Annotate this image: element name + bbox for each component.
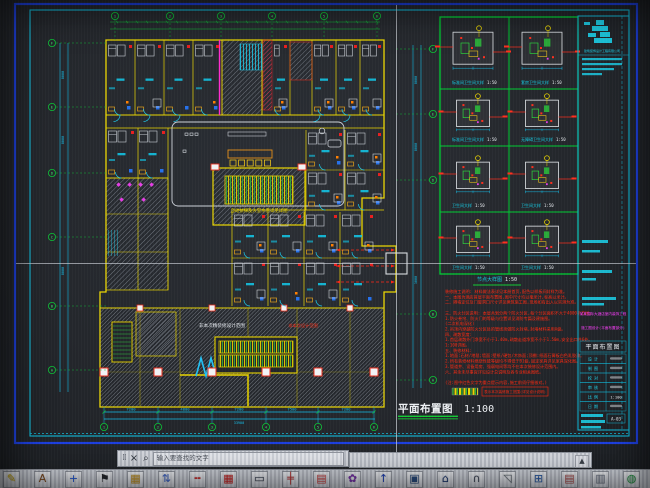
detail-caption: 标准间卫生间大样1:50 — [452, 79, 497, 85]
move-icon[interactable]: + — [65, 471, 82, 488]
roof-arrow-icon[interactable]: ◹ — [499, 471, 516, 488]
svg-text:比 例: 比 例 — [588, 395, 598, 400]
floor-plan: 自动扶梯及大堂水景详见详图非本次精装修设计范围非本次设计范围 — [100, 40, 396, 407]
notes-block: 装修施工说明: 材料做法表详见本册首页,配色以样板间封样为准。一、本图为酒店首层… — [445, 288, 593, 396]
svg-text:A: A — [51, 368, 54, 372]
pencil-icon[interactable]: ✎ — [3, 471, 20, 488]
drawing-viewport[interactable]: 自动扶梯及大堂水景详见详图非本次精装修设计范围非本次设计范围8000800080… — [0, 0, 650, 488]
svg-text:6: 6 — [376, 14, 378, 18]
room — [271, 263, 302, 306]
lobby-block-label: 自动扶梯及大堂水景详见详图 — [230, 207, 288, 214]
svg-text:E: E — [51, 105, 53, 109]
room — [275, 45, 288, 115]
svg-text:B: B — [432, 312, 434, 316]
room — [307, 263, 338, 306]
svg-text:A-03: A-03 — [611, 417, 622, 422]
svg-text:3: 3 — [220, 14, 222, 18]
detail-figure — [439, 220, 508, 257]
svg-text:节点大样图1:50: 节点大样图1:50 — [477, 276, 517, 283]
detail-caption: 卫生间大样1:50 — [452, 264, 485, 270]
grid-bubble: 1 — [100, 423, 107, 430]
room — [348, 173, 382, 210]
note-line: 二、隔墙定位及门窗洞口尺寸详见建筑施工图,现场如有出入以实测为准。 — [445, 299, 578, 305]
close-icon[interactable]: × — [129, 454, 139, 464]
svg-text:B: B — [51, 304, 53, 308]
svg-text:F: F — [432, 47, 434, 51]
room — [196, 45, 220, 115]
note-line: 2.所有装修材料燃烧性能等级均不得低于B1级,固定家具详见家具深化图。 — [445, 358, 580, 364]
svg-text:3: 3 — [211, 425, 213, 429]
note-line: (注:图中红色文字为重点提示内容,施工前须仔细核对。) — [445, 379, 547, 385]
svg-text:2: 2 — [169, 14, 171, 18]
note-line: 2.吊顶内穿越防火分区处的管线须做防火封堵,封堵材料采用A级。 — [445, 325, 565, 331]
svg-text:1:100: 1:100 — [464, 404, 494, 415]
svg-text:平面布置图: 平面布置图 — [585, 343, 620, 351]
schedule-icon[interactable]: ▤ — [561, 471, 578, 488]
flag-icon[interactable]: ⚑ — [96, 471, 113, 488]
room — [309, 173, 343, 210]
svg-text:33900: 33900 — [234, 421, 245, 425]
room — [309, 133, 343, 170]
find-input[interactable]: 输入要查找的文字 — [153, 452, 344, 466]
sheet-icon[interactable]: ▥ — [592, 471, 609, 488]
svg-text:1: 1 — [103, 425, 105, 429]
detail-caption: 套房卫生间大样1:50 — [521, 79, 562, 85]
svg-text:7200: 7200 — [126, 407, 136, 412]
svg-text:D: D — [51, 171, 53, 175]
grid-bubble: 4 — [262, 423, 269, 430]
svg-text:5: 5 — [317, 425, 319, 429]
grid-bubble: E — [48, 103, 55, 110]
detail-caption: 卫生间大样1:50 — [521, 264, 554, 270]
svg-text:8000: 8000 — [61, 71, 65, 79]
dim-line-icon[interactable]: ╍ — [189, 471, 206, 488]
title-block: 建筑装饰设计工程有限公司某某国际大酒店室内装饰工程施工图设计(平面布置部分)平面… — [578, 16, 629, 430]
svg-text:8000: 8000 — [61, 267, 65, 275]
grid-bubble: 2 — [166, 12, 173, 19]
text-style-icon[interactable]: A — [34, 471, 51, 488]
room — [235, 263, 266, 306]
arrow-up-icon[interactable]: ↑ — [375, 471, 392, 488]
room — [343, 263, 374, 306]
grid-bubble: 6 — [373, 12, 380, 19]
room — [307, 215, 338, 258]
note-line: 四、疏散宽度: — [445, 331, 472, 337]
note-line: 五、装修材料: — [445, 347, 472, 353]
svg-text:施工图设计(平面布置部分): 施工图设计(平面布置部分) — [581, 325, 625, 330]
grid-bubble: E — [429, 110, 436, 117]
room — [343, 215, 374, 258]
section-marks-icon[interactable]: ╪ — [282, 471, 299, 488]
note-line: 1:100详图。 — [445, 342, 470, 348]
bottom-toolbar: ✎A+⚑▦⇅╍▦▭╪▤✿↑▣⌂∩◹⊞▤▥◍◨ — [0, 469, 650, 488]
svg-text:C: C — [51, 235, 53, 239]
svg-text:设 计: 设 计 — [588, 357, 598, 362]
grid-bubble: 5 — [314, 423, 321, 430]
plan-title: 平面布置图1:100 — [398, 402, 494, 419]
svg-text:建筑装饰设计工程有限公司: 建筑装饰设计工程有限公司 — [584, 48, 620, 53]
table-cells-icon[interactable]: ▦ — [127, 471, 144, 488]
svg-text:4: 4 — [271, 14, 273, 18]
magnifier-icon[interactable]: ⌕ — [142, 454, 150, 464]
find-toolbar: ⁞⁞ × ⌕ 输入要查找的文字 — [117, 450, 349, 467]
room — [138, 45, 162, 115]
grid-bubble: A — [48, 366, 55, 373]
track-grid-icon[interactable]: ▦ — [220, 471, 237, 488]
note-line: 一、本图为酒店首层平面布置图,图中尺寸均以毫米计,标高以米计。 — [445, 293, 569, 299]
detail-caption: 卫生间大样1:50 — [521, 202, 554, 208]
grid-bubble: D — [48, 169, 55, 176]
grid-bubble: D — [429, 176, 436, 183]
note-line: (二次机电深化) — [445, 320, 475, 326]
room — [348, 133, 382, 170]
svg-text:6: 6 — [373, 425, 375, 429]
svg-text:8000: 8000 — [414, 143, 418, 151]
grid-bubble: 2 — [154, 423, 161, 430]
grid-bubble: B — [429, 310, 436, 317]
svg-text:2: 2 — [157, 425, 159, 429]
detail-figure — [439, 156, 508, 193]
detail-caption: 标准间卫生间大样1:50 — [452, 136, 497, 142]
detail-figure — [508, 94, 577, 131]
scroll-arrow-icon[interactable]: ▲ — [575, 455, 589, 468]
detail-figure — [439, 94, 508, 131]
note-line: 3.管道井、设备用房、强弱电间等均不在本次装修设计范围内。 — [445, 363, 560, 369]
grid-bubble: A — [429, 376, 436, 383]
room — [167, 45, 191, 115]
svg-text:8000: 8000 — [61, 136, 65, 144]
detail-figure — [508, 156, 577, 193]
grid-bubble: F — [48, 39, 55, 46]
svg-text:5: 5 — [323, 14, 325, 18]
note-line: 1.首层疏散外门净宽不小于1.40m,疏散走道净宽不小于1.50m,安全出口共6… — [445, 336, 593, 342]
room — [109, 45, 133, 115]
grid-bubble: 3 — [208, 423, 215, 430]
svg-text:审 核: 审 核 — [588, 385, 598, 390]
svg-text:1: 1 — [114, 14, 116, 18]
grid-bubble: 3 — [217, 12, 224, 19]
building-icon[interactable]: ⌂ — [437, 471, 454, 488]
detail-section-caption: 节点大样图1:50 — [473, 276, 521, 286]
detail-caption: 卫生间大样1:50 — [452, 202, 485, 208]
detail-figure — [504, 26, 580, 70]
grid-sheet-icon[interactable]: ⊞ — [530, 471, 547, 488]
note-line: 装修施工说明: 材料做法表详见本册首页,配色以样板间封样为准。 — [445, 288, 567, 294]
svg-text:E: E — [432, 112, 434, 116]
grid-bubble: C — [48, 233, 55, 240]
svg-text:8000: 8000 — [414, 76, 418, 84]
svg-text:F: F — [51, 41, 53, 45]
grid-bubble: 4 — [268, 12, 275, 19]
grid-bubble: 5 — [320, 12, 327, 19]
svg-text:制 图: 制 图 — [588, 366, 598, 371]
svg-text:平面布置图: 平面布置图 — [398, 402, 453, 415]
axis-swap-icon[interactable]: ⇅ — [158, 471, 175, 488]
svg-text:4800: 4800 — [180, 407, 190, 412]
cad-application-window: 自动扶梯及大堂水景详见详图非本次精装修设计范围非本次设计范围8000800080… — [0, 0, 650, 488]
screen-icon[interactable]: ▭ — [251, 471, 268, 488]
svg-text:7500: 7500 — [287, 407, 297, 412]
rail-icon[interactable]: ▤ — [313, 471, 330, 488]
svg-text:日 期: 日 期 — [588, 404, 598, 409]
toolbar-grip[interactable]: ⁞⁞ — [122, 454, 126, 463]
note-line: 1.防火卷帘、防火门的等级与位置详见消防专篇及建施图。 — [445, 315, 552, 321]
svg-text:7200: 7200 — [341, 407, 351, 412]
grid-bubble: 1 — [111, 12, 118, 19]
podium-note-white: 非本次精装修设计范围 — [199, 322, 245, 329]
podium-note-red: 非本次设计范围 — [288, 322, 317, 329]
svg-text:A: A — [432, 378, 435, 382]
note-line: 1.地面:石材/地毯;墙面:壁纸/硬包/木饰面;顶棚:纸面石膏板白色乳胶漆。 — [445, 352, 584, 358]
detail-figure — [508, 220, 577, 257]
svg-text:某某国际大酒店室内装饰工程: 某某国际大酒店室内装饰工程 — [580, 311, 627, 316]
room — [363, 45, 382, 115]
note-line: 三、防火分区说明: 本层共划分两个防火分区,每个分区面积不大于4000平方米。 — [445, 309, 593, 315]
svg-text:校 对: 校 对 — [588, 376, 598, 381]
grid-bubble: 6 — [370, 423, 377, 430]
room — [315, 45, 334, 115]
note-line: 六、其余未尽事宜详见设计总说明及各专业相关图纸。 — [445, 368, 543, 374]
room — [109, 131, 135, 178]
globe-icon[interactable]: ◍ — [623, 471, 640, 488]
plant-icon[interactable]: ✿ — [344, 471, 361, 488]
arch-icon[interactable]: ∩ — [468, 471, 485, 488]
horizontal-scrollbar[interactable]: ▲ — [349, 452, 592, 468]
room — [339, 45, 358, 115]
svg-text:D: D — [432, 178, 434, 182]
svg-text:4: 4 — [265, 425, 267, 429]
detail-figure — [435, 26, 511, 70]
svg-text:1:100: 1:100 — [610, 395, 622, 400]
detail-caption: 无障碍卫生间大样1:50 — [521, 136, 566, 142]
framed-image-icon[interactable]: ▣ — [406, 471, 423, 488]
svg-text:3000: 3000 — [414, 276, 418, 284]
room — [140, 131, 166, 178]
legend-text: 表示本次装修施工范围(详见设计说明) — [484, 389, 546, 394]
svg-text:7200: 7200 — [234, 407, 244, 412]
grid-bubble: B — [48, 302, 55, 309]
